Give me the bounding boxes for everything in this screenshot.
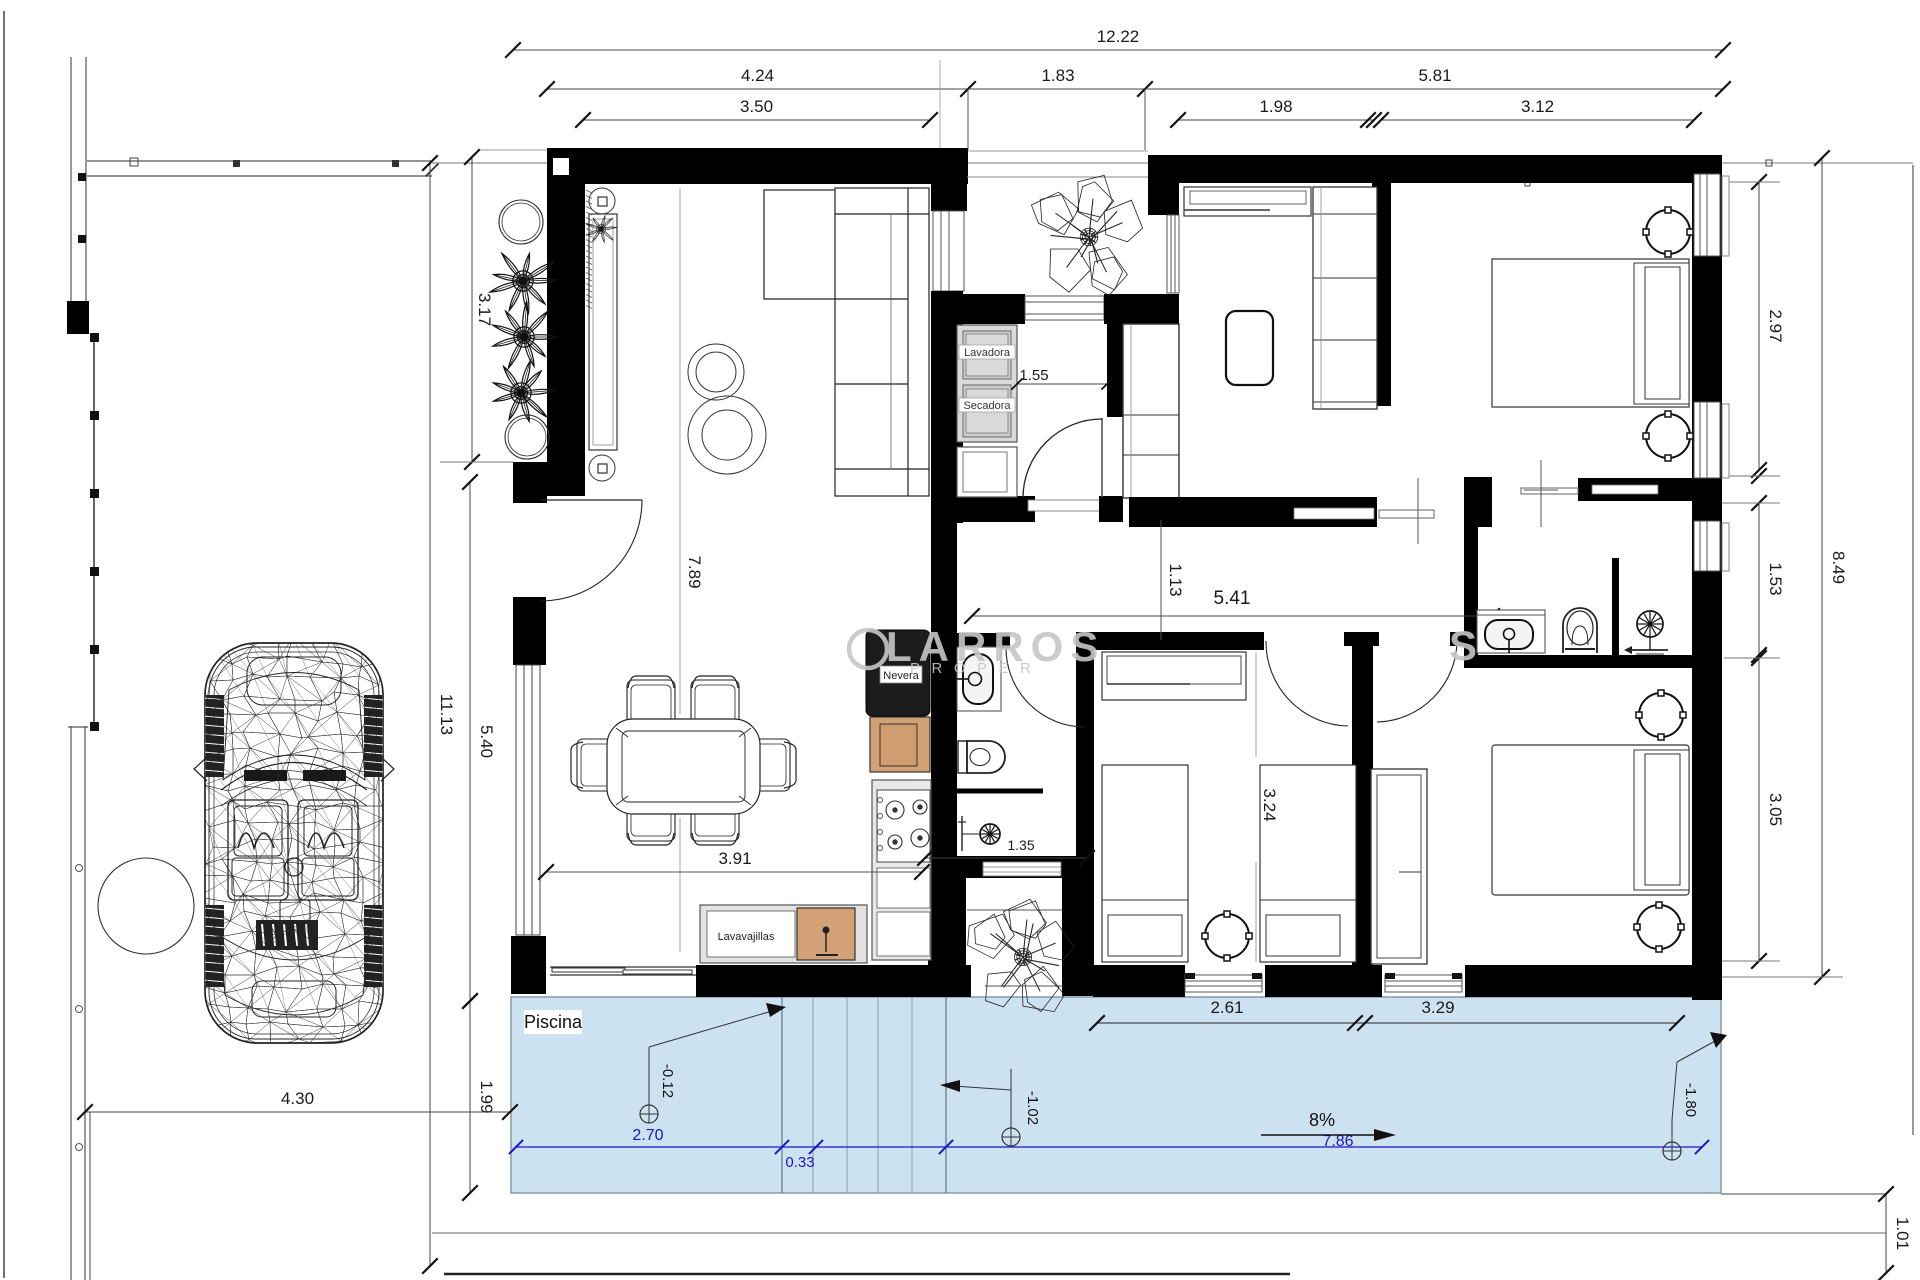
svg-text:3.05: 3.05 xyxy=(1766,793,1785,826)
svg-text:5.41: 5.41 xyxy=(1214,588,1251,609)
svg-text:3.17: 3.17 xyxy=(475,293,494,326)
svg-text:3.29: 3.29 xyxy=(1421,998,1454,1017)
svg-text:1.99: 1.99 xyxy=(477,1080,496,1113)
svg-text:PROPER: PROPER xyxy=(910,660,1042,677)
svg-text:0.33: 0.33 xyxy=(785,1154,814,1171)
svg-text:Lavadora: Lavadora xyxy=(964,347,1011,359)
svg-text:1.53: 1.53 xyxy=(1766,562,1785,595)
svg-text:-0.12: -0.12 xyxy=(659,1064,676,1098)
svg-text:8%: 8% xyxy=(1309,1110,1335,1130)
svg-text:3.50: 3.50 xyxy=(740,97,773,116)
svg-text:11.13: 11.13 xyxy=(437,694,456,735)
svg-text:1.01: 1.01 xyxy=(1893,1217,1912,1250)
svg-text:4.30: 4.30 xyxy=(281,1089,314,1108)
svg-text:S: S xyxy=(1449,622,1477,669)
svg-text:8.49: 8.49 xyxy=(1829,551,1848,584)
svg-text:1.83: 1.83 xyxy=(1041,66,1074,85)
svg-text:Lavavajillas: Lavavajillas xyxy=(718,931,775,943)
svg-text:3.12: 3.12 xyxy=(1521,97,1554,116)
svg-text:5.40: 5.40 xyxy=(477,725,496,758)
svg-text:7.89: 7.89 xyxy=(685,555,704,588)
svg-text:2.70: 2.70 xyxy=(632,1127,663,1144)
svg-text:5.81: 5.81 xyxy=(1418,66,1451,85)
svg-text:1.35: 1.35 xyxy=(1007,837,1034,853)
svg-text:Secadora: Secadora xyxy=(963,400,1011,412)
svg-text:3.91: 3.91 xyxy=(718,849,751,868)
svg-text:1.13: 1.13 xyxy=(1166,563,1185,596)
svg-text:-1.02: -1.02 xyxy=(1024,1091,1041,1125)
svg-text:12.22: 12.22 xyxy=(1097,27,1140,46)
svg-text:1.55: 1.55 xyxy=(1019,367,1048,384)
svg-text:1.98: 1.98 xyxy=(1259,97,1292,116)
svg-text:-1.80: -1.80 xyxy=(1682,1083,1699,1117)
svg-text:4.24: 4.24 xyxy=(741,66,774,85)
svg-text:2.61: 2.61 xyxy=(1210,998,1243,1017)
svg-text:3.24: 3.24 xyxy=(1260,788,1279,821)
svg-text:Piscina: Piscina xyxy=(524,1012,583,1032)
svg-text:2.97: 2.97 xyxy=(1766,309,1785,342)
